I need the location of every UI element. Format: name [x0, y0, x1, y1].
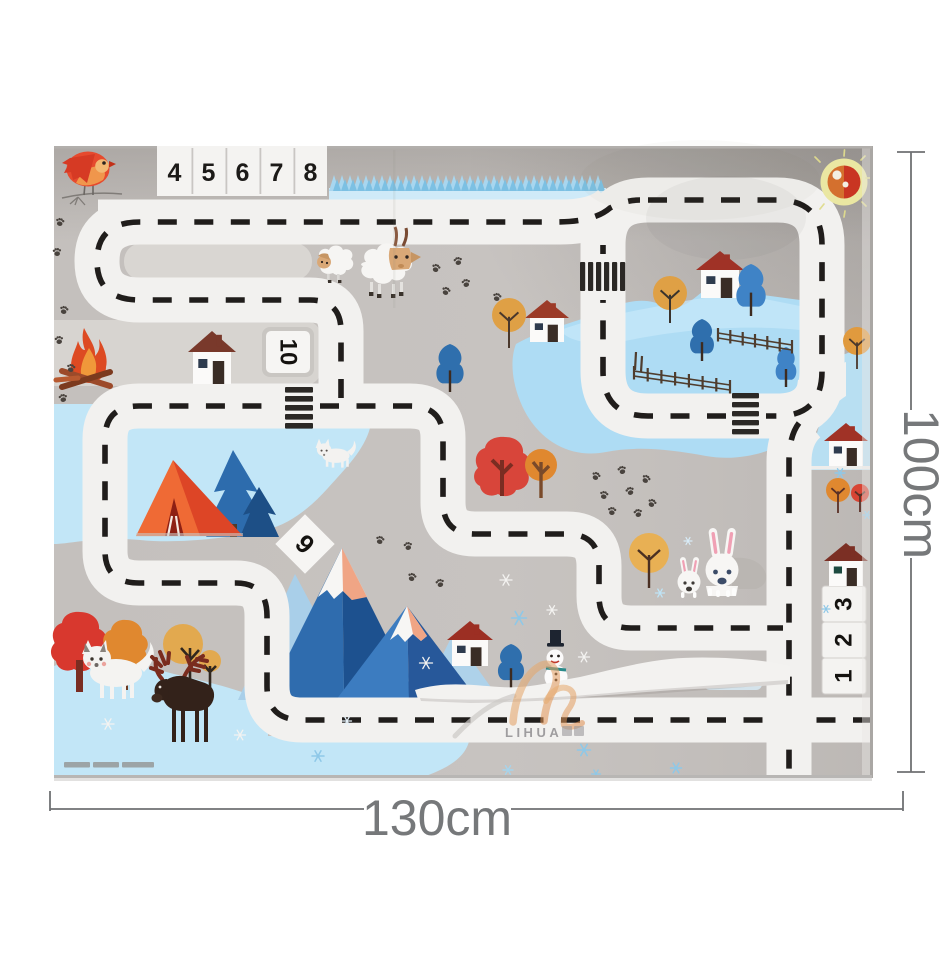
svg-text:6: 6 [236, 159, 250, 187]
svg-text:7: 7 [270, 159, 284, 187]
svg-text:2: 2 [831, 633, 858, 646]
svg-text:1: 1 [831, 669, 858, 682]
svg-text:10: 10 [275, 339, 302, 366]
svg-text:8: 8 [304, 159, 318, 187]
svg-text:LIHUA: LIHUA [505, 725, 562, 740]
svg-text:130cm: 130cm [362, 790, 512, 846]
svg-text:4: 4 [168, 159, 182, 187]
svg-text:5: 5 [202, 159, 216, 187]
svg-text:3: 3 [831, 597, 858, 610]
svg-text:100cm: 100cm [893, 409, 949, 559]
